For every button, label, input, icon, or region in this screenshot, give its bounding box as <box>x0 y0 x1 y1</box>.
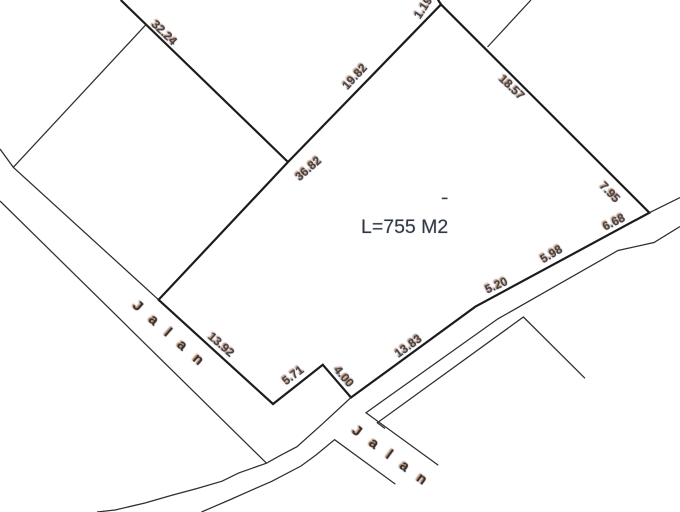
svg-text:L=755 M2: L=755 M2 <box>361 216 448 238</box>
